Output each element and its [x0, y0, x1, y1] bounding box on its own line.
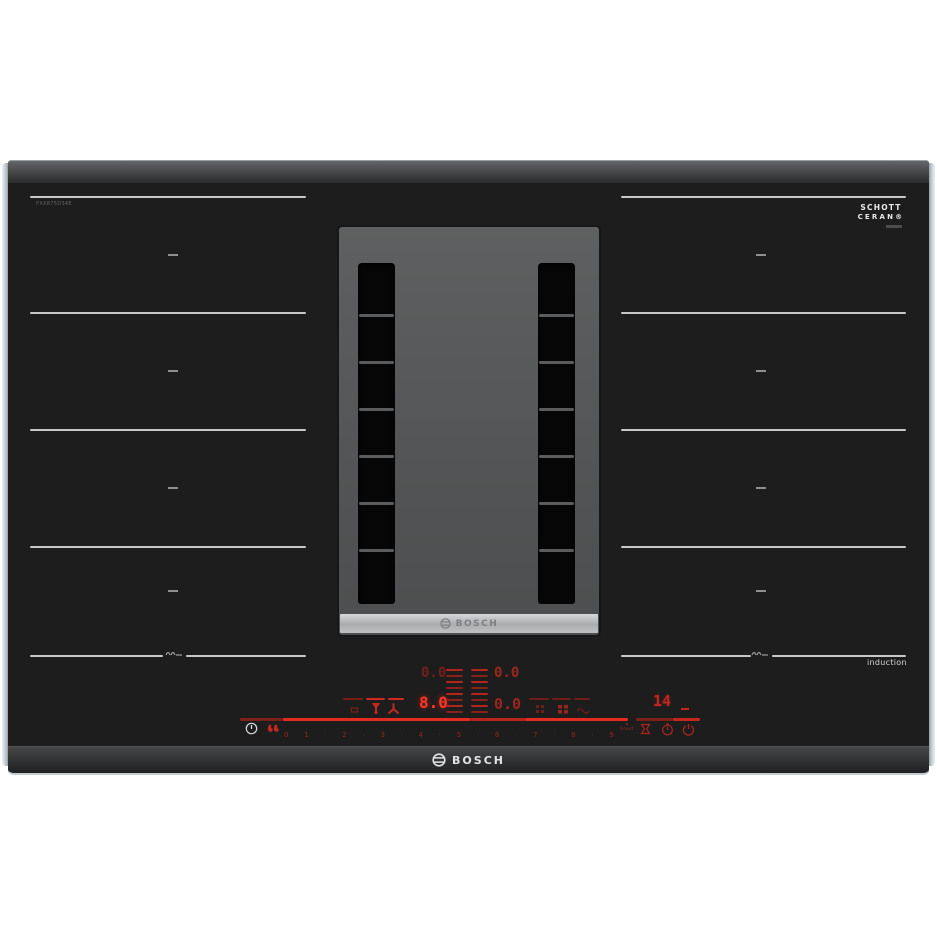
zone-line: [30, 429, 306, 431]
zone-line: [30, 655, 163, 657]
strip-line: [636, 718, 673, 721]
clock-icon[interactable]: [661, 723, 674, 736]
product-photo: PXX875D34E SCHOTT CERAN® induction BOSCH…: [0, 0, 937, 937]
model-label: PXX875D34E: [36, 201, 72, 207]
grille-divider: [539, 455, 574, 458]
power-level-step[interactable]: 3: [380, 731, 384, 739]
strip-line: [673, 718, 700, 721]
strip-line: [470, 718, 525, 721]
rear-facet: [8, 160, 929, 184]
grille-divider: [539, 502, 574, 505]
flex-link-rung: [446, 675, 463, 677]
power-circle-icon[interactable]: [245, 722, 258, 735]
flex-link-rung: [471, 705, 488, 707]
grille-divider: [539, 361, 574, 364]
slider-dot: ·: [553, 731, 555, 739]
timer-unit-mark: [681, 708, 689, 710]
boost-control[interactable]: ▴ boost: [614, 722, 640, 732]
zone-line: [621, 655, 751, 657]
grid-icon[interactable]: [557, 704, 569, 714]
bosch-emblem-icon: [440, 618, 451, 629]
zone-center-mark: [756, 254, 766, 256]
power-level-step[interactable]: 4: [419, 731, 423, 739]
grille-divider: [359, 314, 394, 317]
boost-label: boost: [614, 727, 640, 732]
flex-link-rung: [446, 699, 463, 701]
grille-divider: [359, 408, 394, 411]
vent-level-bar: [343, 698, 363, 700]
flex-link-rung: [446, 711, 463, 713]
wipe-protection-icon[interactable]: [576, 706, 590, 714]
glass-brand-logo: SCHOTT CERAN®: [856, 203, 906, 228]
flex-link-rung: [471, 699, 488, 701]
display-front-left: 8.0: [419, 693, 448, 712]
vent-module: BOSCH: [337, 225, 601, 637]
grille-divider: [539, 314, 574, 317]
display-timer: 14: [653, 692, 671, 710]
grid-icon[interactable]: [535, 704, 545, 714]
strip-line: [240, 718, 283, 721]
bosch-emblem-icon: [432, 753, 446, 767]
zone-select-bar: [529, 698, 549, 700]
flex-link-rung: [446, 681, 463, 683]
slider-dot: ·: [515, 731, 517, 739]
zone-line: [186, 655, 306, 657]
power-level-step[interactable]: 8: [571, 731, 575, 739]
flex-link-rung: [446, 705, 463, 707]
flex-link-rung: [446, 693, 463, 695]
zone-center-mark: [168, 590, 178, 592]
pan-icon: [165, 649, 183, 658]
flex-link-indicator-left: [446, 669, 463, 717]
slider-dot: ·: [591, 731, 593, 739]
power-level-step[interactable]: 5: [457, 731, 461, 739]
zone-center-mark: [168, 254, 178, 256]
flex-link-rung: [471, 693, 488, 695]
zone-center-mark: [168, 487, 178, 489]
grille-divider: [539, 549, 574, 552]
display-front-right: 0.0: [494, 695, 521, 713]
power-level-step[interactable]: 7: [533, 731, 537, 739]
bosch-logo: BOSCH: [432, 753, 505, 767]
slider-dot: ·: [324, 731, 326, 739]
grille-divider: [359, 455, 394, 458]
bosch-logo-text: BOSCH: [452, 754, 505, 767]
zone-center-mark: [756, 370, 766, 372]
power-level-step[interactable]: 0: [284, 731, 288, 739]
display-back-left: 0.0: [421, 665, 446, 681]
flex-link-rung: [446, 669, 463, 671]
vent-grille-left: [358, 263, 395, 604]
power-level-slider[interactable]: 01·2·3·4·5·6·7·8·9: [284, 729, 614, 741]
grille-divider: [359, 361, 394, 364]
pot-icon[interactable]: [349, 704, 360, 715]
zone-line: [621, 196, 906, 198]
fan-icon[interactable]: [387, 703, 400, 715]
glass-brand-subtext: [886, 225, 902, 228]
zone-line: [30, 546, 306, 548]
glass-brand-line1: SCHOTT: [856, 203, 906, 212]
vent-level-bar: [366, 698, 385, 700]
strip-line: [283, 718, 470, 721]
induction-label: induction: [867, 658, 907, 667]
grille-divider: [359, 549, 394, 552]
power-level-step[interactable]: 6: [495, 731, 499, 739]
flex-link-rung: [471, 669, 488, 671]
zone-line: [30, 312, 306, 314]
power-icon[interactable]: [682, 723, 695, 736]
grille-divider: [539, 408, 574, 411]
flex-link-indicator-right: [471, 669, 488, 717]
power-level-step[interactable]: 2: [342, 731, 346, 739]
slider-dot: ·: [439, 731, 441, 739]
flex-link-rung: [471, 711, 488, 713]
vent-logo-strip: BOSCH: [340, 614, 598, 633]
zone-line: [30, 196, 306, 198]
zone-center-mark: [168, 370, 178, 372]
zone-line: [621, 429, 906, 431]
vent-grille-right: [538, 263, 575, 604]
vent-level-bar: [388, 698, 404, 700]
glass-brand-line2: CERAN®: [856, 213, 906, 221]
zone-select-bar: [552, 698, 571, 700]
front-facet: BOSCH: [8, 746, 929, 775]
display-back-right: 0.0: [494, 665, 519, 681]
strip-line: [525, 718, 628, 721]
slider-dot: ·: [363, 731, 365, 739]
hourglass-icon[interactable]: [640, 723, 651, 736]
double-flame-icon[interactable]: [266, 722, 280, 735]
power-level-step[interactable]: 1: [304, 731, 308, 739]
power-level-step[interactable]: 9: [609, 731, 613, 739]
zone-center-mark: [756, 590, 766, 592]
grille-divider: [359, 502, 394, 505]
zone-line: [621, 312, 906, 314]
zone-line: [772, 655, 906, 657]
flex-link-rung: [471, 687, 488, 689]
vent-bosch-logo: BOSCH: [456, 619, 499, 629]
pan-icon: [751, 649, 769, 658]
slider-dot: ·: [401, 731, 403, 739]
zone-select-bar: [574, 698, 590, 700]
hood-icon[interactable]: [370, 702, 382, 715]
zone-line: [621, 546, 906, 548]
flex-link-rung: [446, 687, 463, 689]
zone-center-mark: [756, 487, 766, 489]
flex-link-rung: [471, 675, 488, 677]
slider-dot: ·: [477, 731, 479, 739]
flex-link-rung: [471, 681, 488, 683]
